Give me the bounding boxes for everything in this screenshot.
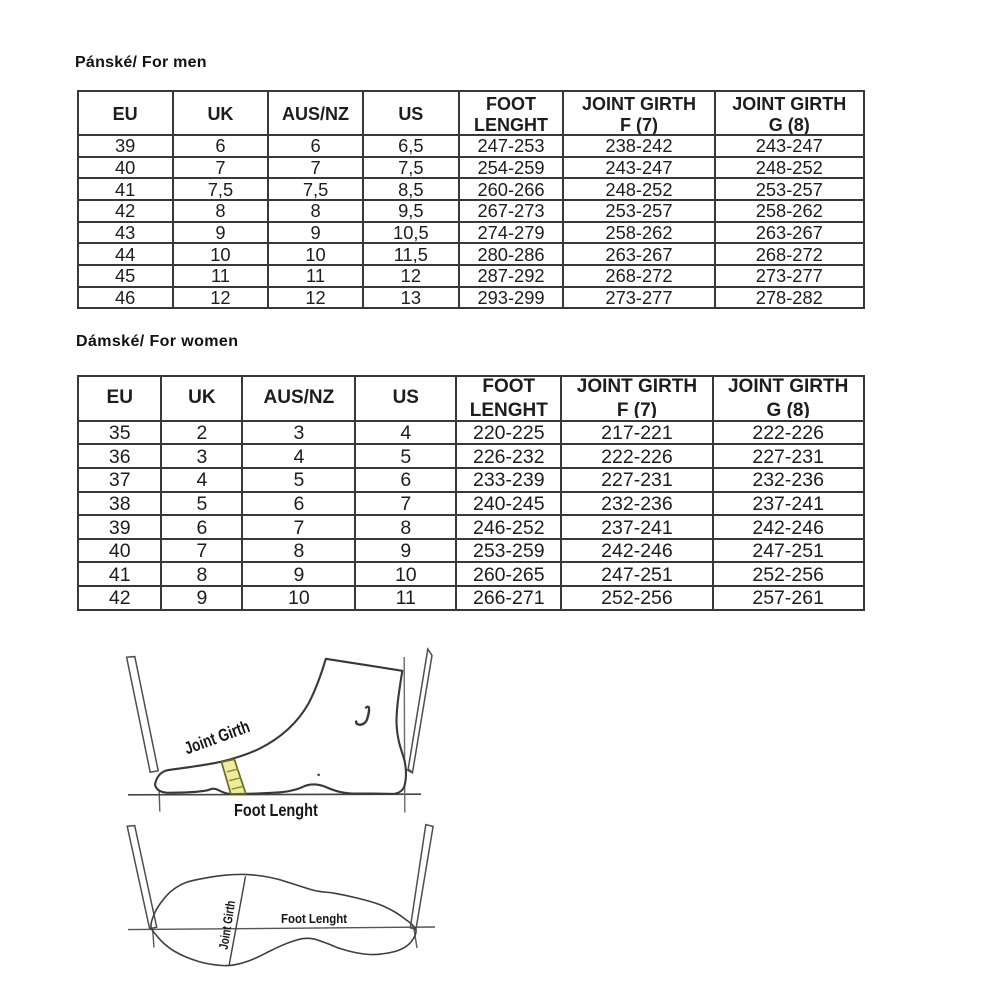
svg-text:Joint Girth: Joint Girth (217, 900, 238, 951)
svg-text:Foot Lenght: Foot Lenght (234, 801, 318, 821)
svg-text:Joint Girth: Joint Girth (182, 718, 253, 759)
svg-text:Foot Lenght: Foot Lenght (281, 911, 347, 926)
